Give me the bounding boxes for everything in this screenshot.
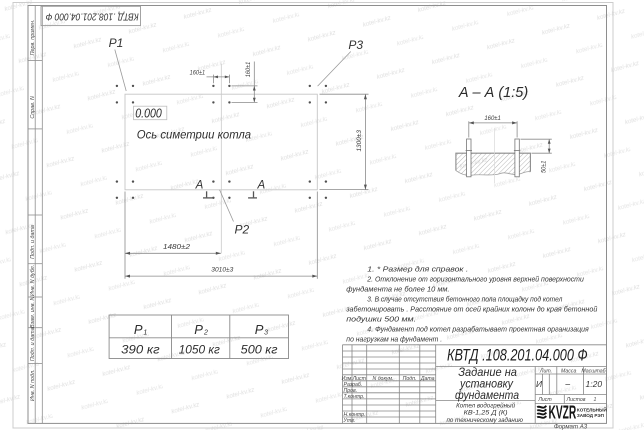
svg-text:1:20: 1:20 (586, 379, 603, 389)
svg-text:160±1: 160±1 (245, 62, 252, 78)
svg-text:160±1: 160±1 (484, 115, 501, 122)
svg-text:Ось симетрии котла: Ось симетрии котла (137, 129, 251, 141)
svg-text:КВ-1,25 Д (К): КВ-1,25 Д (К) (464, 409, 508, 416)
svg-text:P1: P1 (109, 36, 124, 50)
svg-text:Пров.: Пров. (344, 388, 358, 394)
svg-text:KVZR: KVZR (549, 403, 577, 423)
svg-text:КВТД .108.201.04.000 Ф: КВТД .108.201.04.000 Ф (46, 10, 139, 22)
svg-text:1300±3: 1300±3 (356, 130, 363, 152)
svg-text:P: P (134, 322, 143, 337)
svg-text:Инв. N дубл.: Инв. N дубл. (30, 265, 36, 296)
svg-text:2. Отклонение от горизонтальн: 2. Отклонение от горизонтального уровня … (366, 274, 583, 283)
svg-text:фундамента: фундамента (455, 388, 519, 402)
svg-text:Масштаб: Масштаб (581, 368, 606, 374)
svg-text:фундамента не более 10 мм.: фундамента не более 10 мм. (346, 284, 449, 293)
svg-text:P: P (255, 322, 264, 337)
svg-text:по нагрузкам на фундамент .: по нагрузкам на фундамент . (346, 334, 442, 343)
svg-text:Подп. и дата: Подп. и дата (30, 225, 36, 259)
svg-text:3010±3: 3010±3 (211, 267, 233, 274)
svg-text:Масса: Масса (561, 368, 576, 374)
svg-text:КОТЕЛЬНЫЙ: КОТЕЛЬНЫЙ (577, 405, 607, 412)
svg-text:1. * Размер для справок .: 1. * Размер для справок . (367, 264, 468, 273)
svg-text:4. Фундамент под котел разраб: 4. Фундамент под котел разрабатывает про… (367, 324, 589, 333)
svg-text:Справ. N: Справ. N (30, 96, 36, 119)
svg-text:Утв.: Утв. (344, 418, 356, 424)
svg-text:Инв. N подл.: Инв. N подл. (30, 369, 36, 401)
svg-text:–: – (564, 379, 570, 389)
svg-text:Дата: Дата (420, 376, 435, 382)
svg-text:ЗАВОД РЭП: ЗАВОД РЭП (577, 413, 604, 418)
svg-text:A: A (256, 179, 265, 191)
svg-text:КВТД .108.201.04.000 Ф: КВТД .108.201.04.000 Ф (447, 346, 588, 364)
svg-text:2: 2 (203, 330, 208, 337)
svg-text:Подп. и дата: Подп. и дата (30, 327, 36, 361)
svg-text:Формат А3: Формат А3 (554, 424, 588, 430)
svg-text:забетонировать . Расстояние от: забетонировать . Расстояние от осей край… (345, 304, 597, 313)
svg-text:P: P (194, 322, 203, 337)
svg-text:1: 1 (594, 397, 597, 403)
svg-text:Взам. инв. N: Взам. инв. N (30, 296, 36, 328)
svg-text:1: 1 (143, 330, 147, 337)
svg-text:А – А (1:5): А – А (1:5) (458, 85, 528, 101)
svg-text:Подп.: Подп. (403, 376, 417, 382)
svg-text:3: 3 (264, 330, 268, 337)
svg-text:по техническому заданию: по техническому заданию (446, 417, 523, 424)
svg-text:Перв. примен.: Перв. примен. (30, 20, 36, 56)
svg-text:Лит.: Лит. (539, 368, 552, 374)
svg-text:Т.контр.: Т.контр. (344, 394, 365, 400)
svg-text:И: И (536, 379, 543, 389)
svg-text:500 кг: 500 кг (241, 344, 278, 356)
svg-text:P3: P3 (348, 38, 363, 52)
svg-text:3. В случае отсутствия бетонн: 3. В случае отсутствия бетонного пола пл… (367, 294, 563, 303)
svg-text:1050 кг: 1050 кг (179, 344, 221, 356)
svg-text:P2: P2 (234, 222, 249, 236)
svg-text:N докум.: N докум. (373, 376, 394, 382)
svg-text:390 кг: 390 кг (121, 344, 160, 356)
svg-text:0.000: 0.000 (135, 106, 162, 121)
svg-text:A: A (195, 179, 204, 191)
svg-text:160±1: 160±1 (190, 69, 206, 76)
svg-text:подушки 500 мм.: подушки 500 мм. (346, 314, 416, 323)
svg-text:50±1: 50±1 (541, 161, 548, 174)
svg-text:1480±2: 1480±2 (163, 244, 190, 251)
